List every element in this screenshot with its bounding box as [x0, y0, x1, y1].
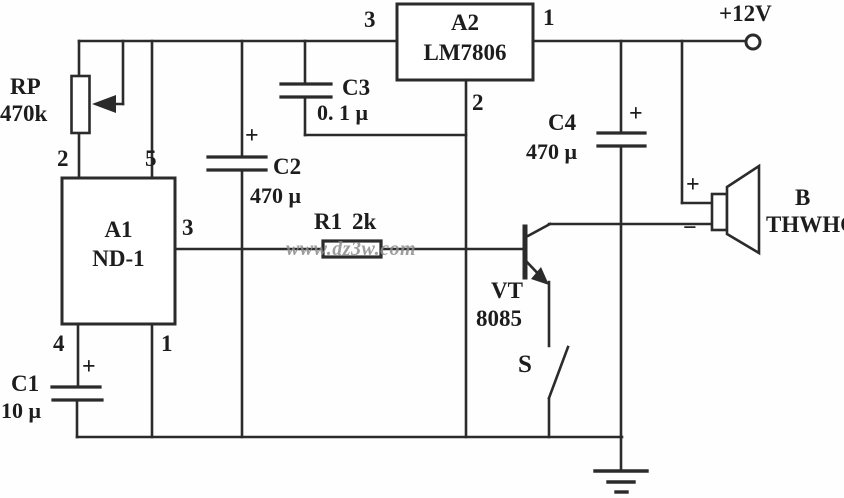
c2-ref: C2	[273, 155, 301, 179]
a2-pin3-label: 3	[364, 8, 376, 32]
c3-ref: C3	[342, 76, 370, 100]
potentiometer-rp-symbol	[72, 41, 124, 178]
c4-plus-sign: +	[629, 102, 643, 127]
c1-plus-sign: +	[82, 355, 96, 380]
capacitor-c1-symbol	[52, 387, 102, 437]
a2-model: LM7806	[397, 41, 533, 65]
c1-value: 10 μ	[1, 399, 41, 422]
speaker-plus-sign: +	[686, 173, 700, 198]
r1-value: 2k	[352, 210, 376, 234]
c2-plus-sign: +	[245, 124, 259, 149]
a1-ref: A1	[62, 218, 175, 242]
ic-a2-box	[397, 4, 533, 437]
rp-ref: RP	[10, 75, 41, 99]
a1-pin2-label: 2	[57, 147, 69, 171]
speaker-minus-sign: −	[683, 216, 697, 241]
c3-value: 0. 1 μ	[317, 101, 368, 124]
capacitor-c2-symbol	[208, 41, 266, 437]
vt-model: 8085	[476, 307, 522, 331]
speaker-ref: B	[795, 186, 810, 210]
a2-ref: A2	[397, 11, 533, 35]
c1-ref: C1	[11, 372, 39, 396]
rp-value: 470k	[0, 102, 47, 126]
a2-pin1-label: 1	[543, 6, 555, 30]
c2-value: 470 μ	[250, 184, 301, 207]
c4-ref: C4	[548, 111, 576, 135]
speaker-model: THWHC	[766, 213, 844, 237]
a2-pin2-label: 2	[472, 91, 484, 115]
switch-s-label: S	[518, 352, 532, 378]
r1-ref: R1	[314, 210, 342, 234]
switch-s-symbol	[549, 347, 568, 437]
a1-pin4-label: 4	[53, 332, 65, 356]
a1-pin1-label: 1	[161, 332, 173, 356]
circuit-schematic: RP 470k 2 5 A1 ND-1 3 4 1 C1 10 μ + C2 4…	[0, 0, 844, 498]
vt-ref: VT	[491, 279, 523, 303]
a1-pin3-label: 3	[182, 216, 194, 240]
a1-model: ND-1	[62, 247, 175, 271]
a1-pin5-label: 5	[145, 147, 157, 171]
c4-value: 470 μ	[526, 140, 577, 163]
power-label: +12V	[719, 2, 772, 26]
transistor-vt-symbol	[525, 224, 713, 346]
ground-icon	[595, 437, 647, 492]
power-terminal-icon	[746, 35, 760, 49]
watermark: www.dz3w.com	[276, 238, 426, 261]
